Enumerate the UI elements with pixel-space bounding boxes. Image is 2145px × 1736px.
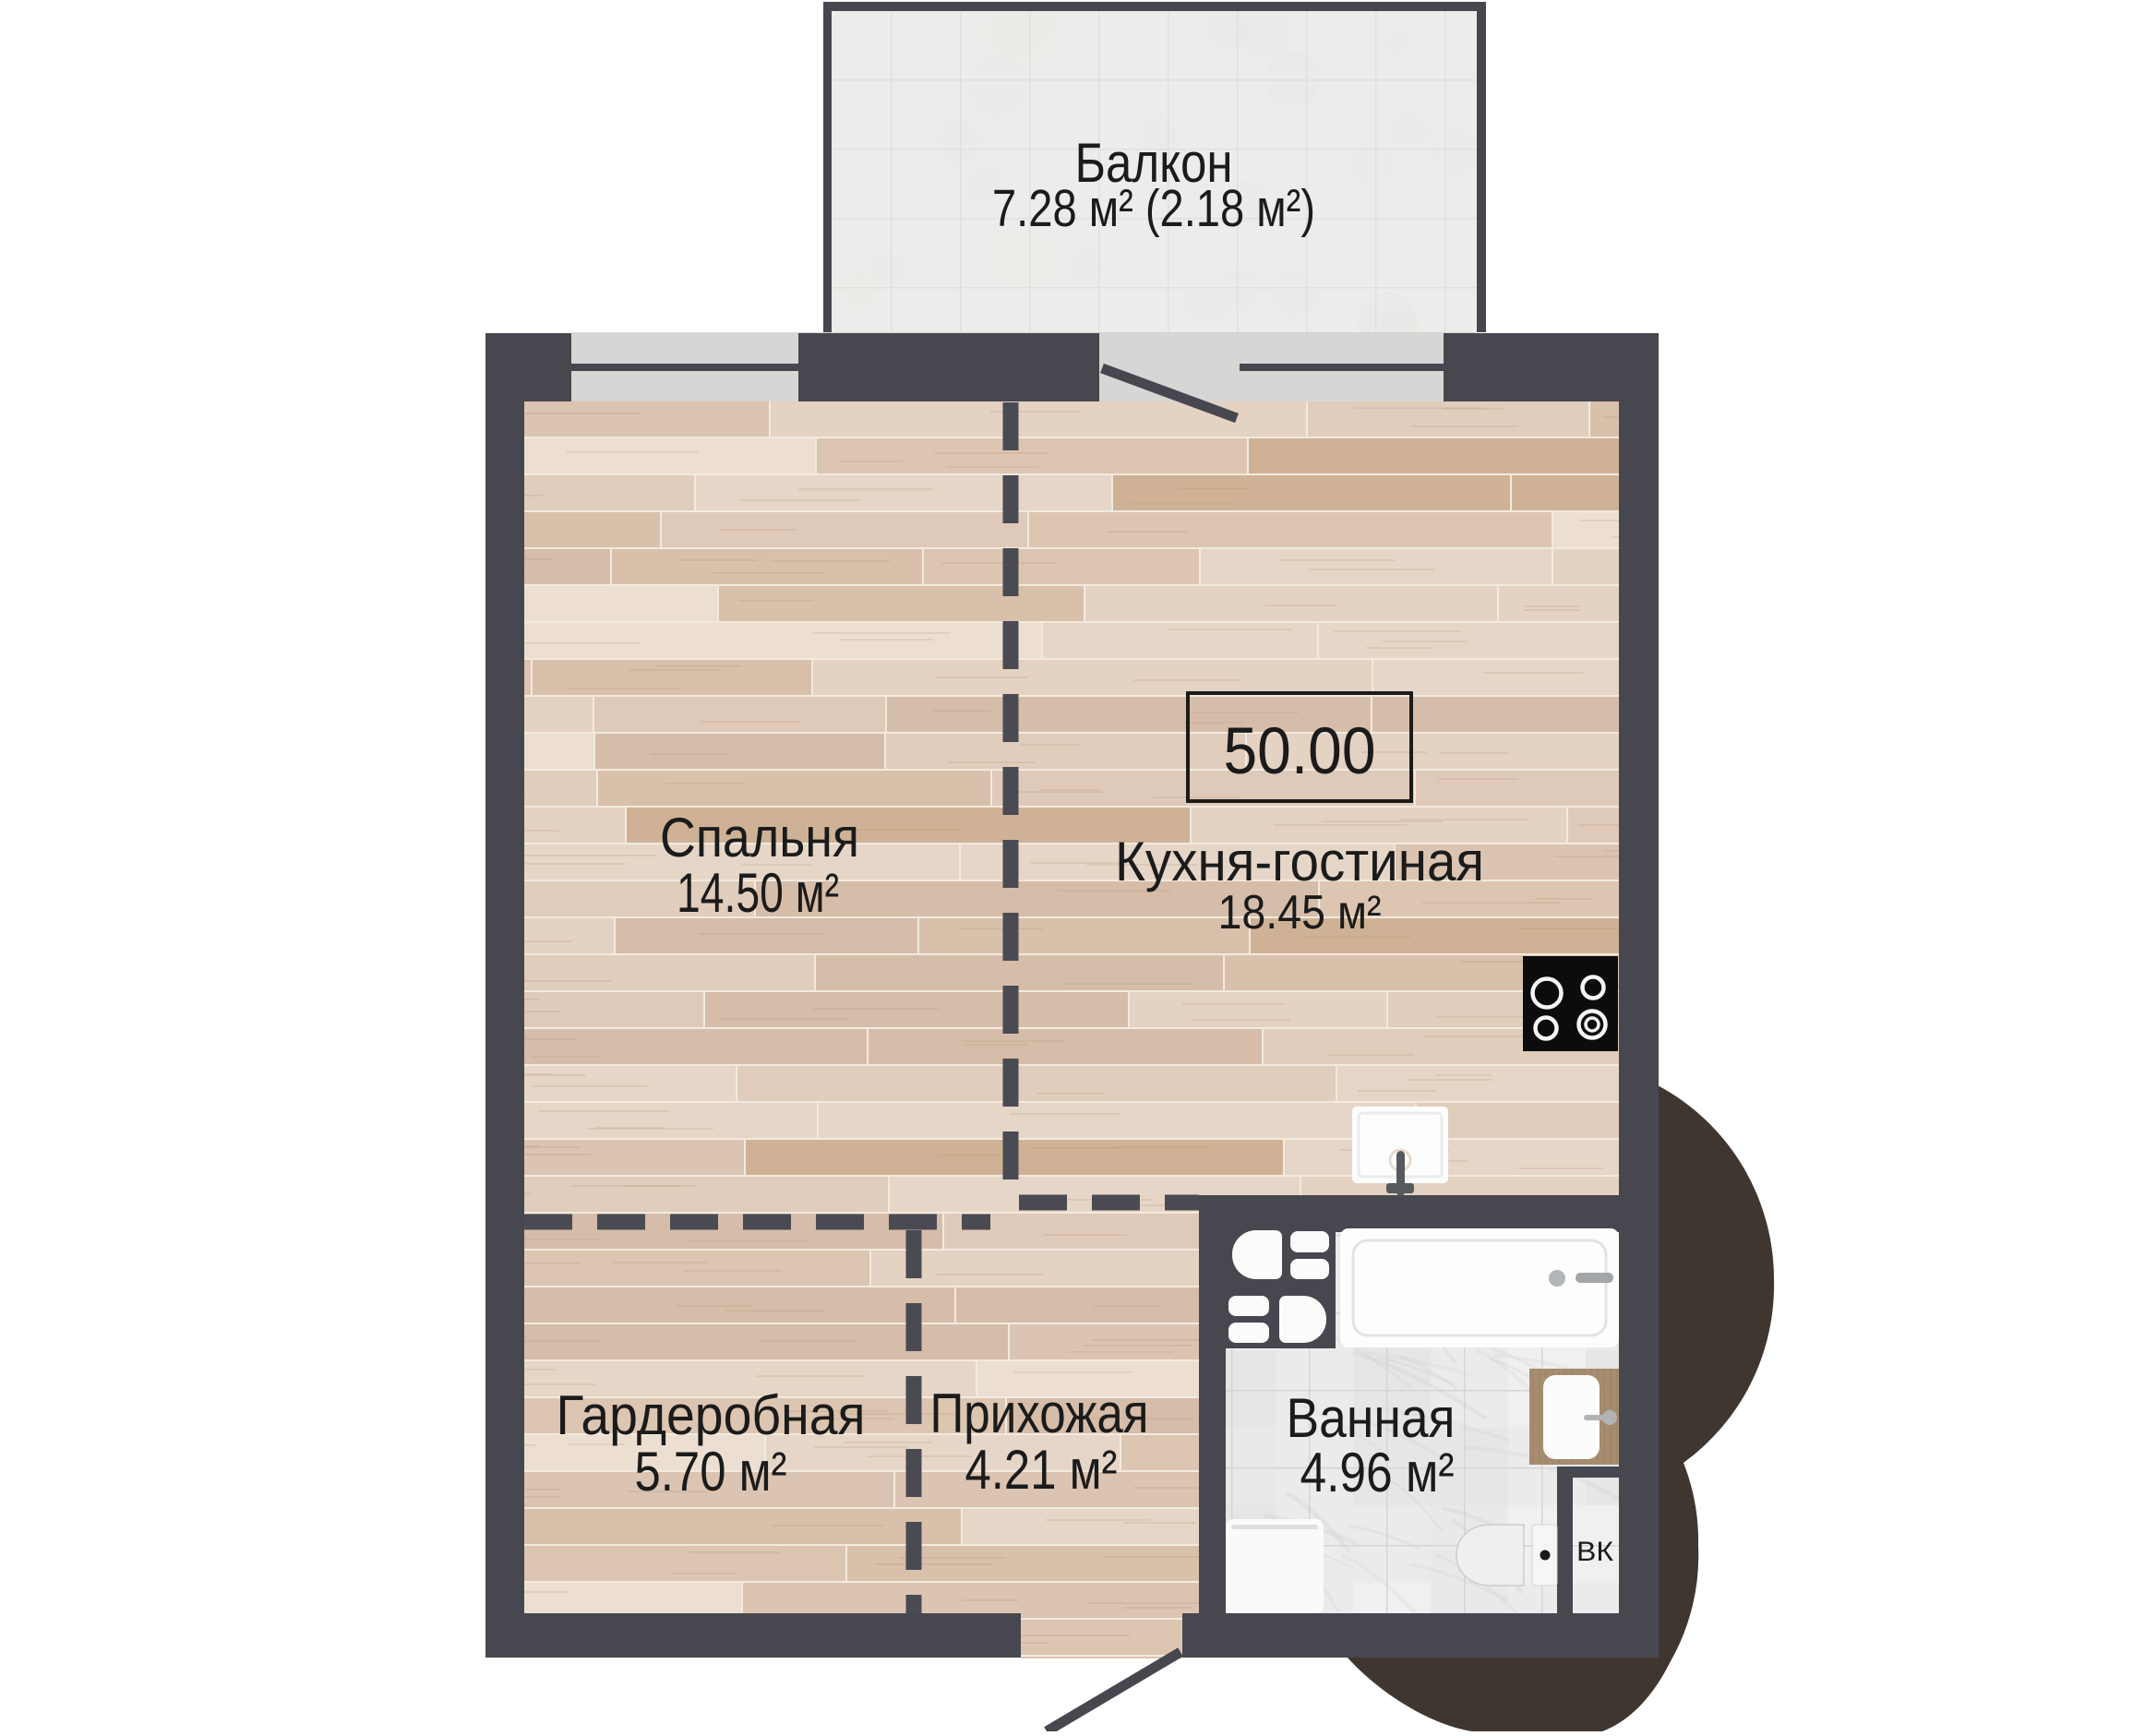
svg-text:18.45 м²: 18.45 м² — [1218, 886, 1382, 940]
svg-text:50.00: 50.00 — [1224, 715, 1376, 788]
svg-text:ВК: ВК — [1576, 1537, 1614, 1567]
svg-text:4.21 м²: 4.21 м² — [965, 1439, 1118, 1501]
svg-text:7.28 м² (2.18 м²): 7.28 м² (2.18 м²) — [992, 179, 1315, 238]
svg-text:5.70 м²: 5.70 м² — [635, 1441, 787, 1503]
svg-text:Спальня: Спальня — [660, 807, 859, 868]
svg-text:4.96 м²: 4.96 м² — [1300, 1442, 1455, 1503]
svg-text:Гардеробная: Гардеробная — [557, 1384, 866, 1446]
svg-text:Прихожая: Прихожая — [930, 1383, 1149, 1444]
svg-text:Кухня-гостиная: Кухня-гостиная — [1115, 831, 1484, 892]
svg-text:Ванная: Ванная — [1287, 1387, 1456, 1449]
svg-text:14.50 м²: 14.50 м² — [677, 862, 839, 924]
